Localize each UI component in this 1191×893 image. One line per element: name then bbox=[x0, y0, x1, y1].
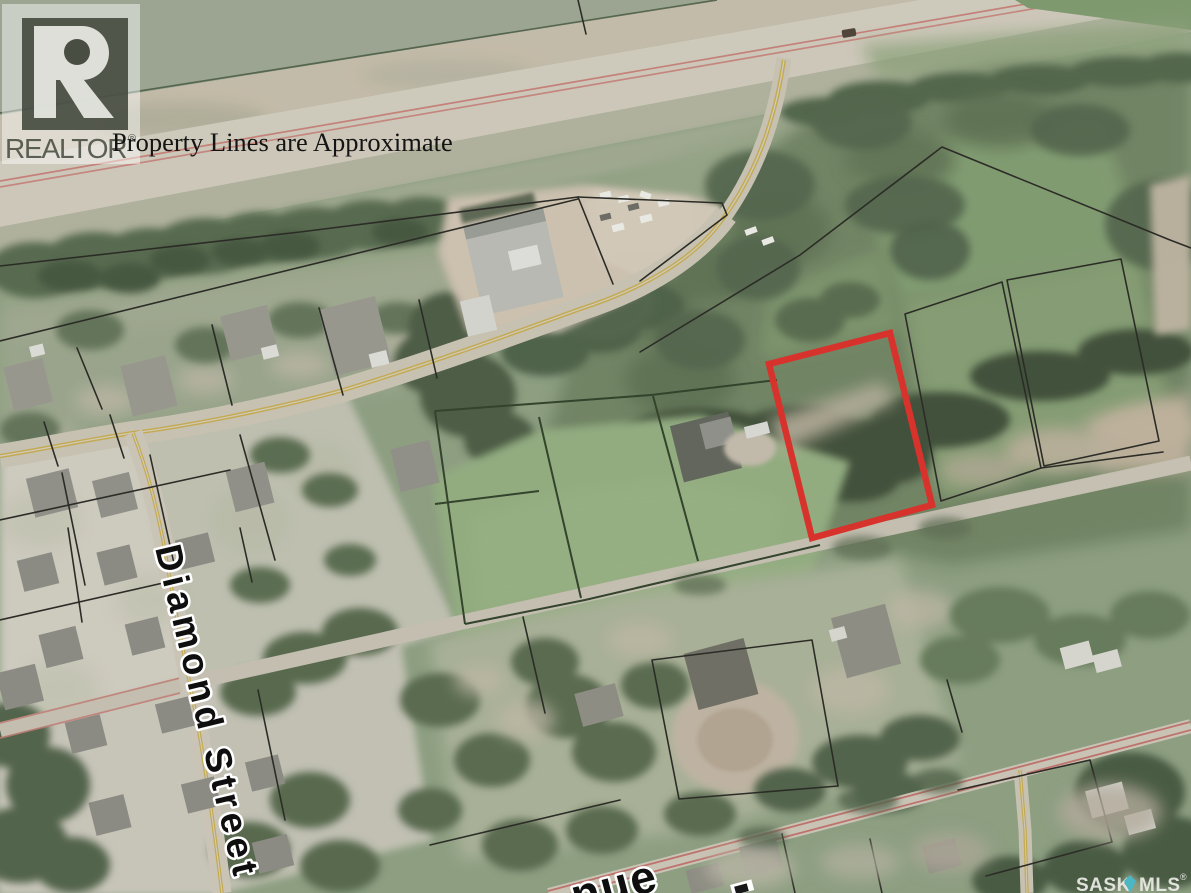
svg-text:®: ® bbox=[1180, 872, 1187, 882]
svg-text:Property Lines are Approximate: Property Lines are Approximate bbox=[112, 127, 453, 157]
svg-text:MLS: MLS bbox=[1139, 875, 1181, 893]
svg-text:SASK: SASK bbox=[1076, 875, 1131, 893]
svg-text:REALTOR: REALTOR bbox=[5, 133, 128, 164]
